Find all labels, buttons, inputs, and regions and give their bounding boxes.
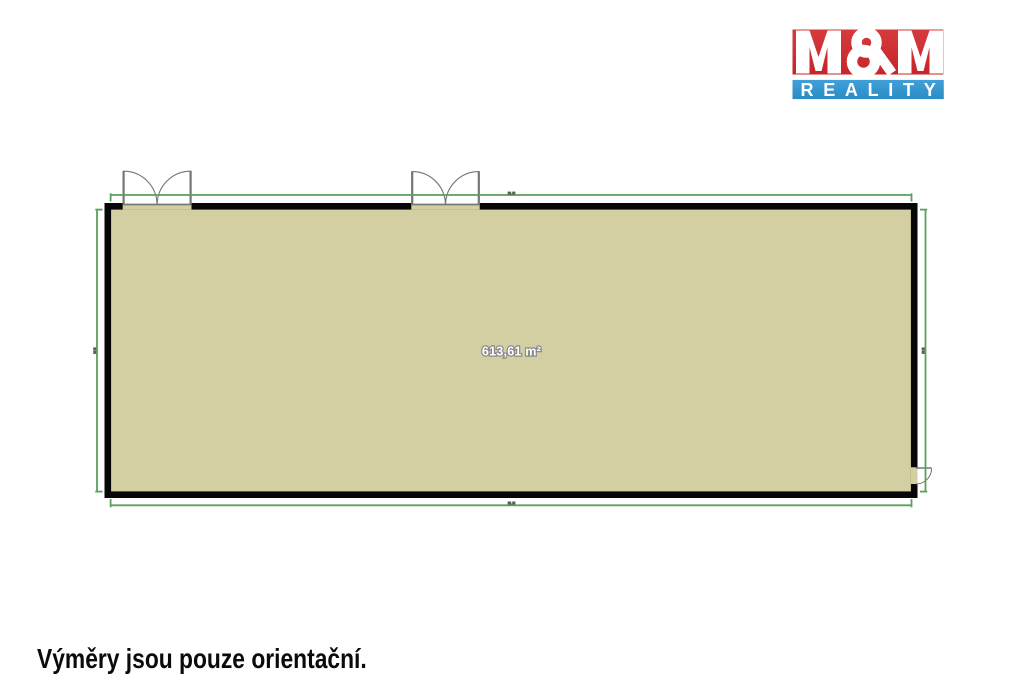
- svg-text:613,61 m²: 613,61 m²: [482, 345, 541, 359]
- svg-text:REALITY: REALITY: [801, 80, 946, 100]
